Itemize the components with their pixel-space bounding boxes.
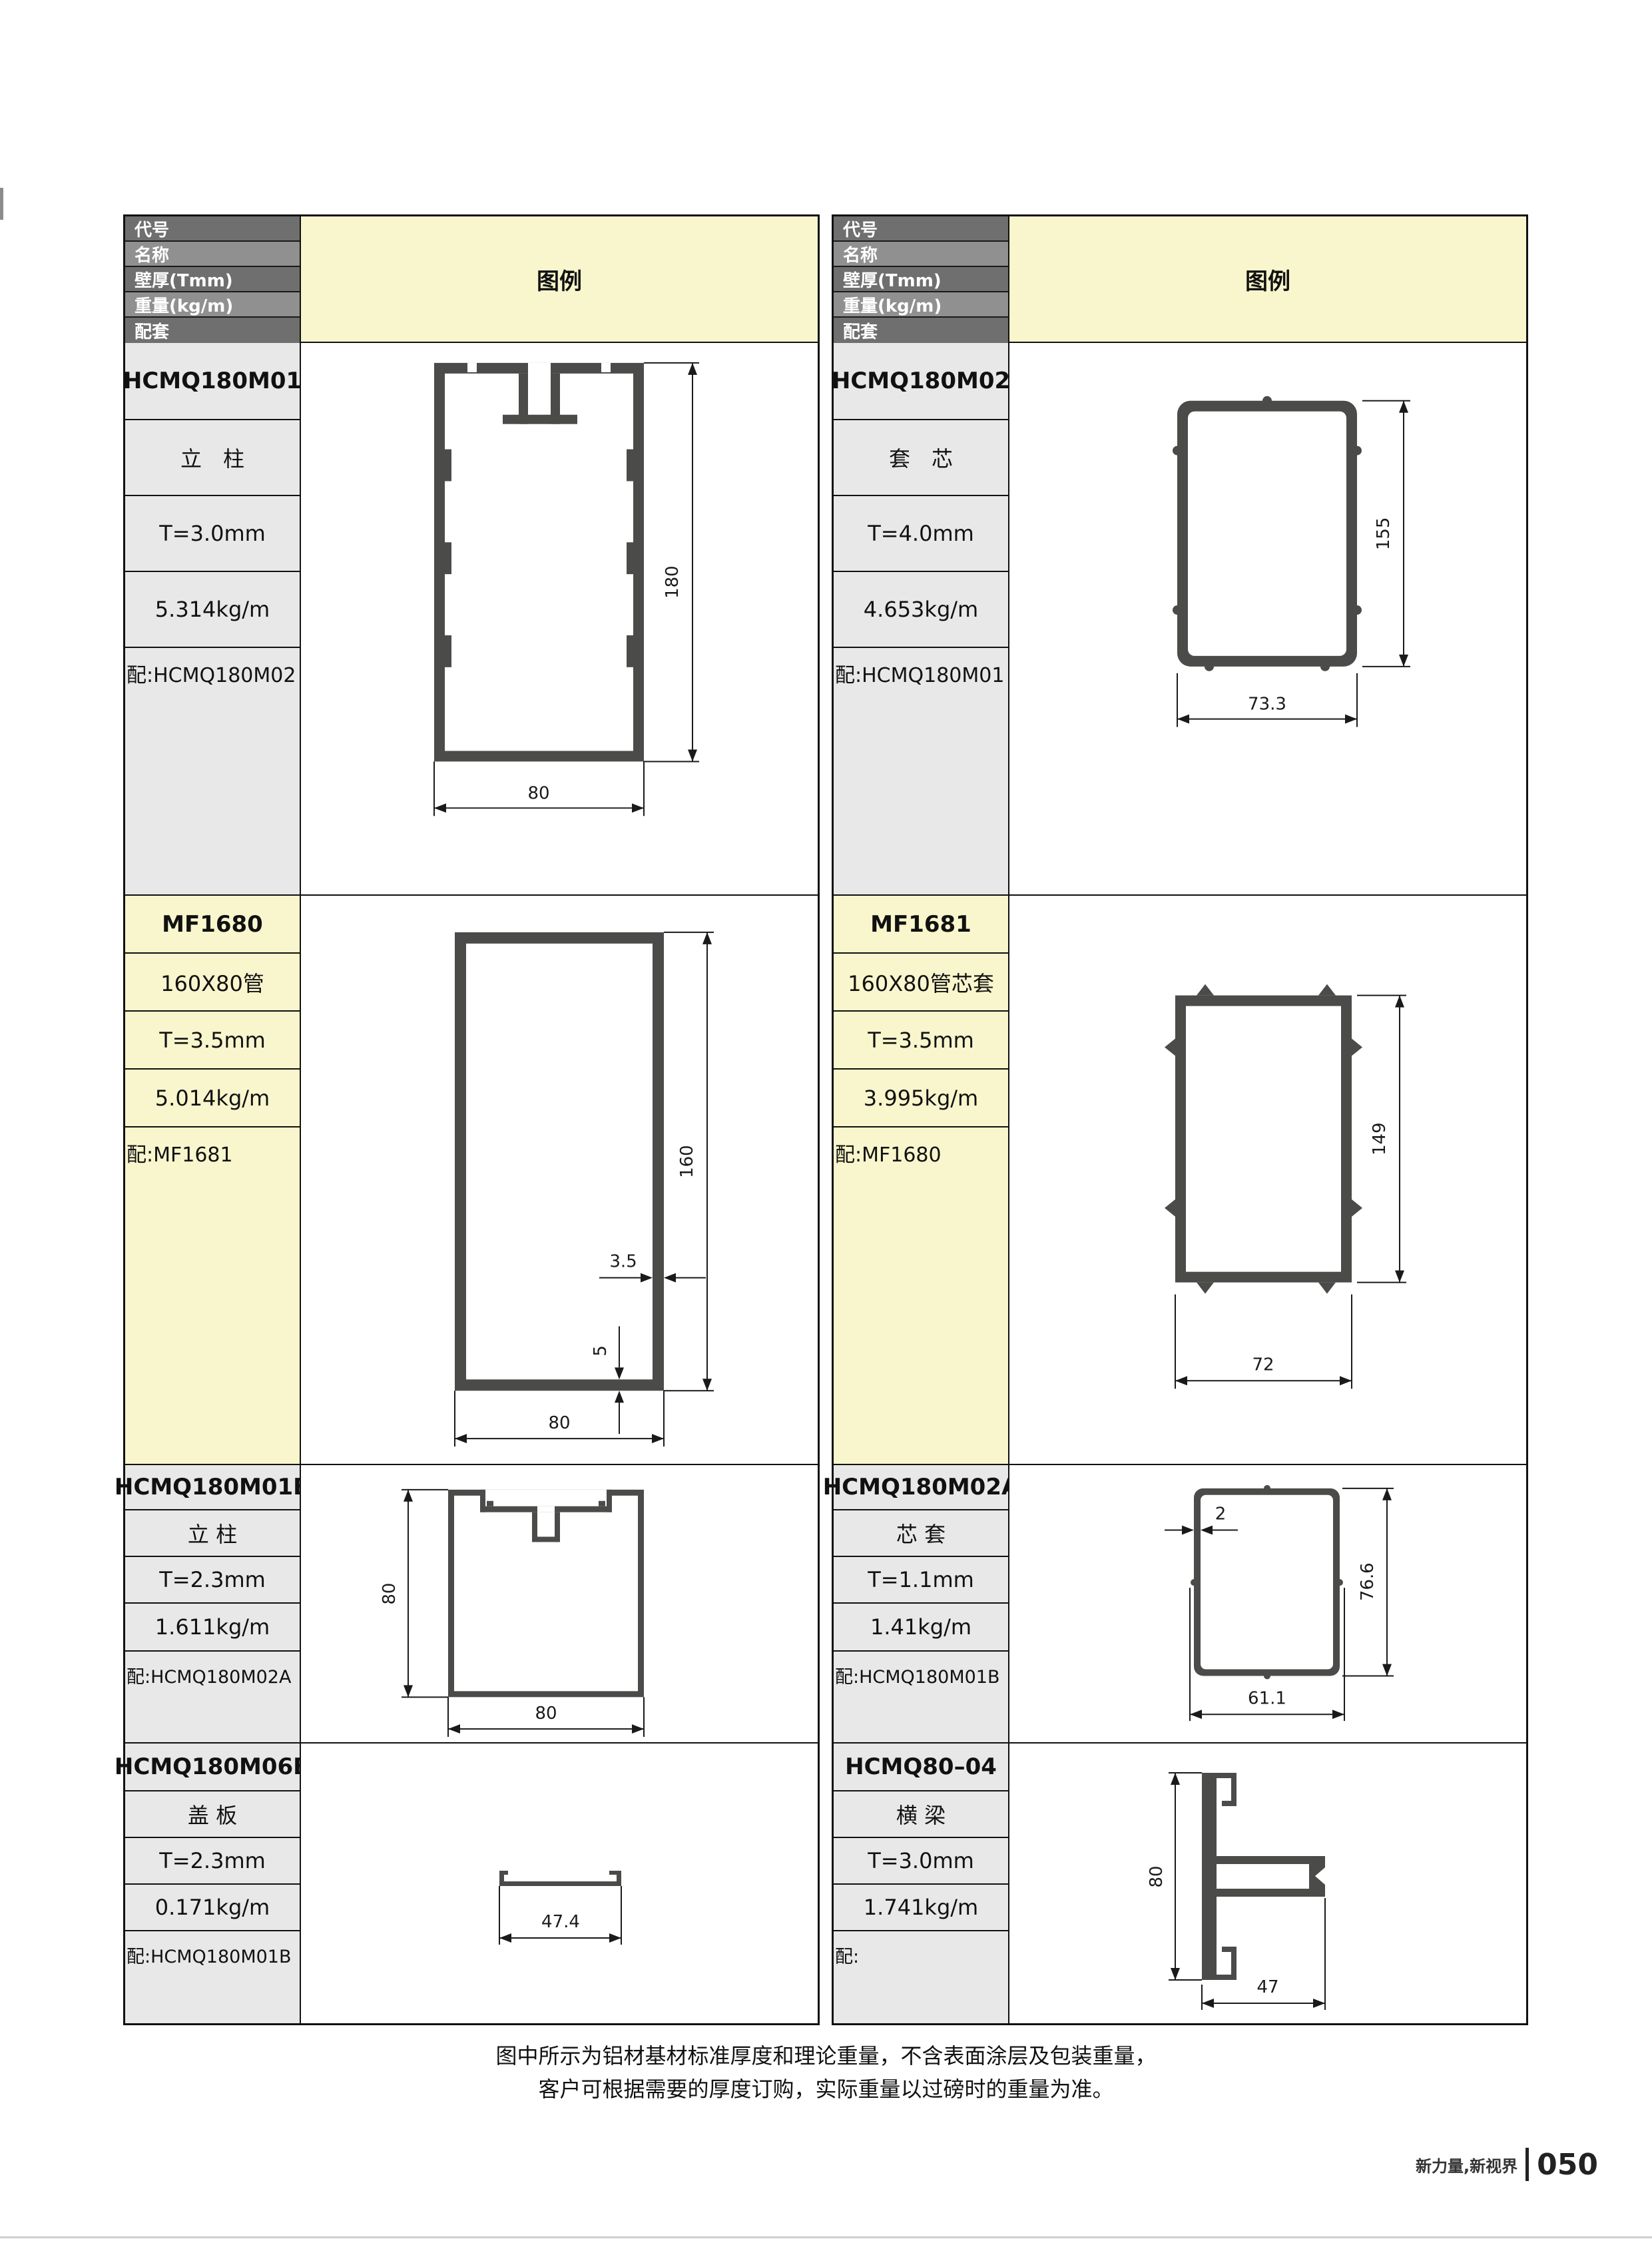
product-weight: 3.995kg/m xyxy=(834,1070,1008,1127)
dim-width: 80 xyxy=(527,783,549,803)
product-row: HCMQ180M01 立 柱 T=3.0mm 5.314kg/m 配:HCMQ1… xyxy=(125,343,818,896)
product-match: 配:HCMQ180M02 xyxy=(125,648,300,894)
product-name: 芯 套 xyxy=(834,1510,1008,1557)
header-cell-weight: 重量(kg/m) xyxy=(125,292,300,318)
product-row: HCMQ180M01B 立 柱 T=2.3mm 1.611kg/m 配:HCMQ… xyxy=(125,1465,818,1744)
dim-height: 160 xyxy=(677,1145,697,1177)
product-code: HCMQ180M06B xyxy=(125,1744,300,1791)
header-cell-match: 配套 xyxy=(125,318,300,343)
product-thickness: T=4.0mm xyxy=(834,496,1008,572)
product-weight: 0.171kg/m xyxy=(125,1885,300,1931)
header-cell-match: 配套 xyxy=(834,318,1008,343)
product-name: 盖 板 xyxy=(125,1791,300,1838)
product-match: 配:MF1681 xyxy=(125,1127,300,1464)
diagram-cell: 80 47 xyxy=(1009,1744,1526,2023)
dim-width: 72 xyxy=(1252,1355,1274,1375)
footer-note-line1: 图中所示为铝材基材标准厚度和理论重量，不含表面涂层及包装重量， xyxy=(0,2039,1652,2073)
product-thickness: T=2.3mm xyxy=(125,1838,300,1885)
product-row: HCMQ180M06B 盖 板 T=2.3mm 0.171kg/m 配:HCMQ… xyxy=(125,1744,818,2023)
header-cell-weight: 重量(kg/m) xyxy=(834,292,1008,318)
diagram-cell: 180 80 xyxy=(301,343,818,894)
dim-width: 80 xyxy=(535,1704,557,1724)
dim-width: 47.4 xyxy=(541,1912,580,1932)
dim-width: 80 xyxy=(548,1413,570,1433)
profile-shape xyxy=(1202,1773,1325,1980)
catalog-page: 代号 名称 壁厚(Tmm) 重量(kg/m) 配套 图例 HCMQ180M01 … xyxy=(0,0,1652,2241)
profile-shape xyxy=(1165,984,1362,1294)
page-number: 050 xyxy=(1537,2148,1598,2182)
product-weight: 1.611kg/m xyxy=(125,1604,300,1652)
product-weight: 5.314kg/m xyxy=(125,572,300,648)
product-code: HCMQ80–04 xyxy=(834,1744,1008,1791)
header-cell-thickness: 壁厚(Tmm) xyxy=(834,267,1008,292)
header-cell-code: 代号 xyxy=(834,216,1008,242)
profile-shape xyxy=(1173,396,1362,671)
header-left: 代号 名称 壁厚(Tmm) 重量(kg/m) 配套 图例 xyxy=(125,216,818,343)
profile-drawing-hcmq180m02: 155 73.3 xyxy=(1009,343,1526,894)
dim-width: 73.3 xyxy=(1248,695,1286,715)
profile-shape xyxy=(499,1871,621,1886)
label-column: HCMQ180M01 立 柱 T=3.0mm 5.314kg/m 配:HCMQ1… xyxy=(125,343,301,894)
product-name: 160X80管芯套 xyxy=(834,954,1008,1012)
product-weight: 5.014kg/m xyxy=(125,1070,300,1127)
product-thickness: T=3.0mm xyxy=(834,1838,1008,1885)
product-name: 160X80管 xyxy=(125,954,300,1012)
product-code: MF1681 xyxy=(834,896,1008,954)
product-thickness: T=3.5mm xyxy=(834,1012,1008,1070)
product-name: 立 柱 xyxy=(125,420,300,496)
dim-height: 149 xyxy=(1370,1122,1390,1155)
label-column: HCMQ180M02 套 芯 T=4.0mm 4.653kg/m 配:HCMQ1… xyxy=(834,343,1009,894)
label-column: HCMQ180M02A 芯 套 T=1.1mm 1.41kg/m 配:HCMQ1… xyxy=(834,1465,1009,1742)
product-code: HCMQ180M01 xyxy=(125,343,300,420)
profile-drawing-hcmq180m01: 180 80 xyxy=(301,343,818,894)
header-right: 代号 名称 壁厚(Tmm) 重量(kg/m) 配套 图例 xyxy=(834,216,1526,343)
product-match: 配:HCMQ180M01B xyxy=(125,1931,300,2023)
product-match: 配:MF1680 xyxy=(834,1127,1008,1464)
product-weight: 4.653kg/m xyxy=(834,572,1008,648)
product-weight: 1.741kg/m xyxy=(834,1885,1008,1931)
bottom-rule xyxy=(0,2236,1652,2238)
header-cell-name: 名称 xyxy=(834,242,1008,267)
diagram-cell: 155 73.3 xyxy=(1009,343,1526,894)
brand-slogan: 新力量,新视界 xyxy=(1416,2153,1517,2176)
dim-width: 47 xyxy=(1256,1977,1278,1997)
footer-note-line2: 客户可根据需要的厚度订购，实际重量以过磅时的重量为准。 xyxy=(0,2073,1652,2106)
product-match: 配:HCMQ180M01B xyxy=(834,1652,1008,1742)
profile-drawing-hcmq180m02a: 2 76.6 61.1 xyxy=(1009,1465,1526,1742)
crop-mark-left xyxy=(0,188,3,220)
product-thickness: T=2.3mm xyxy=(125,1557,300,1604)
dimension-lines: 47.4 xyxy=(499,1886,621,1945)
legend-header: 图例 xyxy=(301,216,818,342)
header-cell-name: 名称 xyxy=(125,242,300,267)
label-column: HCMQ180M01B 立 柱 T=2.3mm 1.611kg/m 配:HCMQ… xyxy=(125,1465,301,1742)
profile-drawing-hcmq80-04: 80 47 xyxy=(1009,1744,1526,2023)
dim-wall: 3.5 xyxy=(609,1252,637,1272)
dim-height: 180 xyxy=(663,565,683,598)
product-name: 套 芯 xyxy=(834,420,1008,496)
profile-shape xyxy=(434,363,644,762)
table-left-half: 代号 名称 壁厚(Tmm) 重量(kg/m) 配套 图例 HCMQ180M01 … xyxy=(123,214,820,2025)
product-name: 立 柱 xyxy=(125,1510,300,1557)
product-match: 配: xyxy=(834,1931,1008,2023)
dim-height: 155 xyxy=(1374,517,1394,550)
header-label-column: 代号 名称 壁厚(Tmm) 重量(kg/m) 配套 xyxy=(125,216,301,342)
profile-shape xyxy=(455,932,664,1391)
footer-divider xyxy=(1525,2148,1529,2181)
table-right-half: 代号 名称 壁厚(Tmm) 重量(kg/m) 配套 图例 HCMQ180M02 … xyxy=(832,214,1528,2025)
product-code: HCMQ180M01B xyxy=(125,1465,300,1510)
profile-shape xyxy=(448,1490,644,1698)
profile-drawing-mf1680: 160 80 3.5 xyxy=(301,896,818,1464)
dim-height: 80 xyxy=(380,1583,400,1605)
product-row: HCMQ180M02A 芯 套 T=1.1mm 1.41kg/m 配:HCMQ1… xyxy=(834,1465,1526,1744)
label-column: HCMQ180M06B 盖 板 T=2.3mm 0.171kg/m 配:HCMQ… xyxy=(125,1744,301,2023)
dim-width: 61.1 xyxy=(1248,1688,1286,1708)
legend-header: 图例 xyxy=(1009,216,1526,342)
product-code: MF1680 xyxy=(125,896,300,954)
product-name: 横 梁 xyxy=(834,1791,1008,1838)
profile-shape xyxy=(1191,1485,1343,1680)
header-label-column: 代号 名称 壁厚(Tmm) 重量(kg/m) 配套 xyxy=(834,216,1009,342)
product-row: MF1680 160X80管 T=3.5mm 5.014kg/m 配:MF168… xyxy=(125,896,818,1465)
diagram-cell: 149 72 xyxy=(1009,896,1526,1464)
product-match: 配:HCMQ180M01 xyxy=(834,648,1008,894)
diagram-cell: 47.4 xyxy=(301,1744,818,2023)
label-column: HCMQ80–04 横 梁 T=3.0mm 1.741kg/m 配: xyxy=(834,1744,1009,2023)
dim-height: 76.6 xyxy=(1358,1562,1378,1601)
diagram-cell: 80 80 xyxy=(301,1465,818,1742)
product-code: HCMQ180M02A xyxy=(834,1465,1008,1510)
product-row: MF1681 160X80管芯套 T=3.5mm 3.995kg/m 配:MF1… xyxy=(834,896,1526,1465)
product-row: HCMQ80–04 横 梁 T=3.0mm 1.741kg/m 配: xyxy=(834,1744,1526,2023)
profile-drawing-mf1681: 149 72 xyxy=(1009,896,1526,1464)
label-column: MF1680 160X80管 T=3.5mm 5.014kg/m 配:MF168… xyxy=(125,896,301,1464)
profile-drawing-hcmq180m06b: 47.4 xyxy=(301,1744,818,2023)
dim-bottom-wall: 5 xyxy=(591,1345,611,1356)
profile-drawing-hcmq180m01b: 80 80 xyxy=(301,1465,818,1742)
product-row: HCMQ180M02 套 芯 T=4.0mm 4.653kg/m 配:HCMQ1… xyxy=(834,343,1526,896)
product-thickness: T=3.5mm xyxy=(125,1012,300,1070)
diagram-cell: 2 76.6 61.1 xyxy=(1009,1465,1526,1742)
header-cell-thickness: 壁厚(Tmm) xyxy=(125,267,300,292)
header-cell-code: 代号 xyxy=(125,216,300,242)
page-footer: 新力量,新视界 050 xyxy=(1398,2146,1598,2183)
label-column: MF1681 160X80管芯套 T=3.5mm 3.995kg/m 配:MF1… xyxy=(834,896,1009,1464)
product-thickness: T=1.1mm xyxy=(834,1557,1008,1604)
diagram-cell: 160 80 3.5 xyxy=(301,896,818,1464)
product-thickness: T=3.0mm xyxy=(125,496,300,572)
product-code: HCMQ180M02 xyxy=(834,343,1008,420)
footer-note: 图中所示为铝材基材标准厚度和理论重量，不含表面涂层及包装重量， 客户可根据需要的… xyxy=(0,2039,1652,2106)
dim-height: 80 xyxy=(1147,1865,1167,1887)
product-weight: 1.41kg/m xyxy=(834,1604,1008,1652)
dim-wall: 2 xyxy=(1215,1504,1227,1524)
product-match: 配:HCMQ180M02A xyxy=(125,1652,300,1742)
